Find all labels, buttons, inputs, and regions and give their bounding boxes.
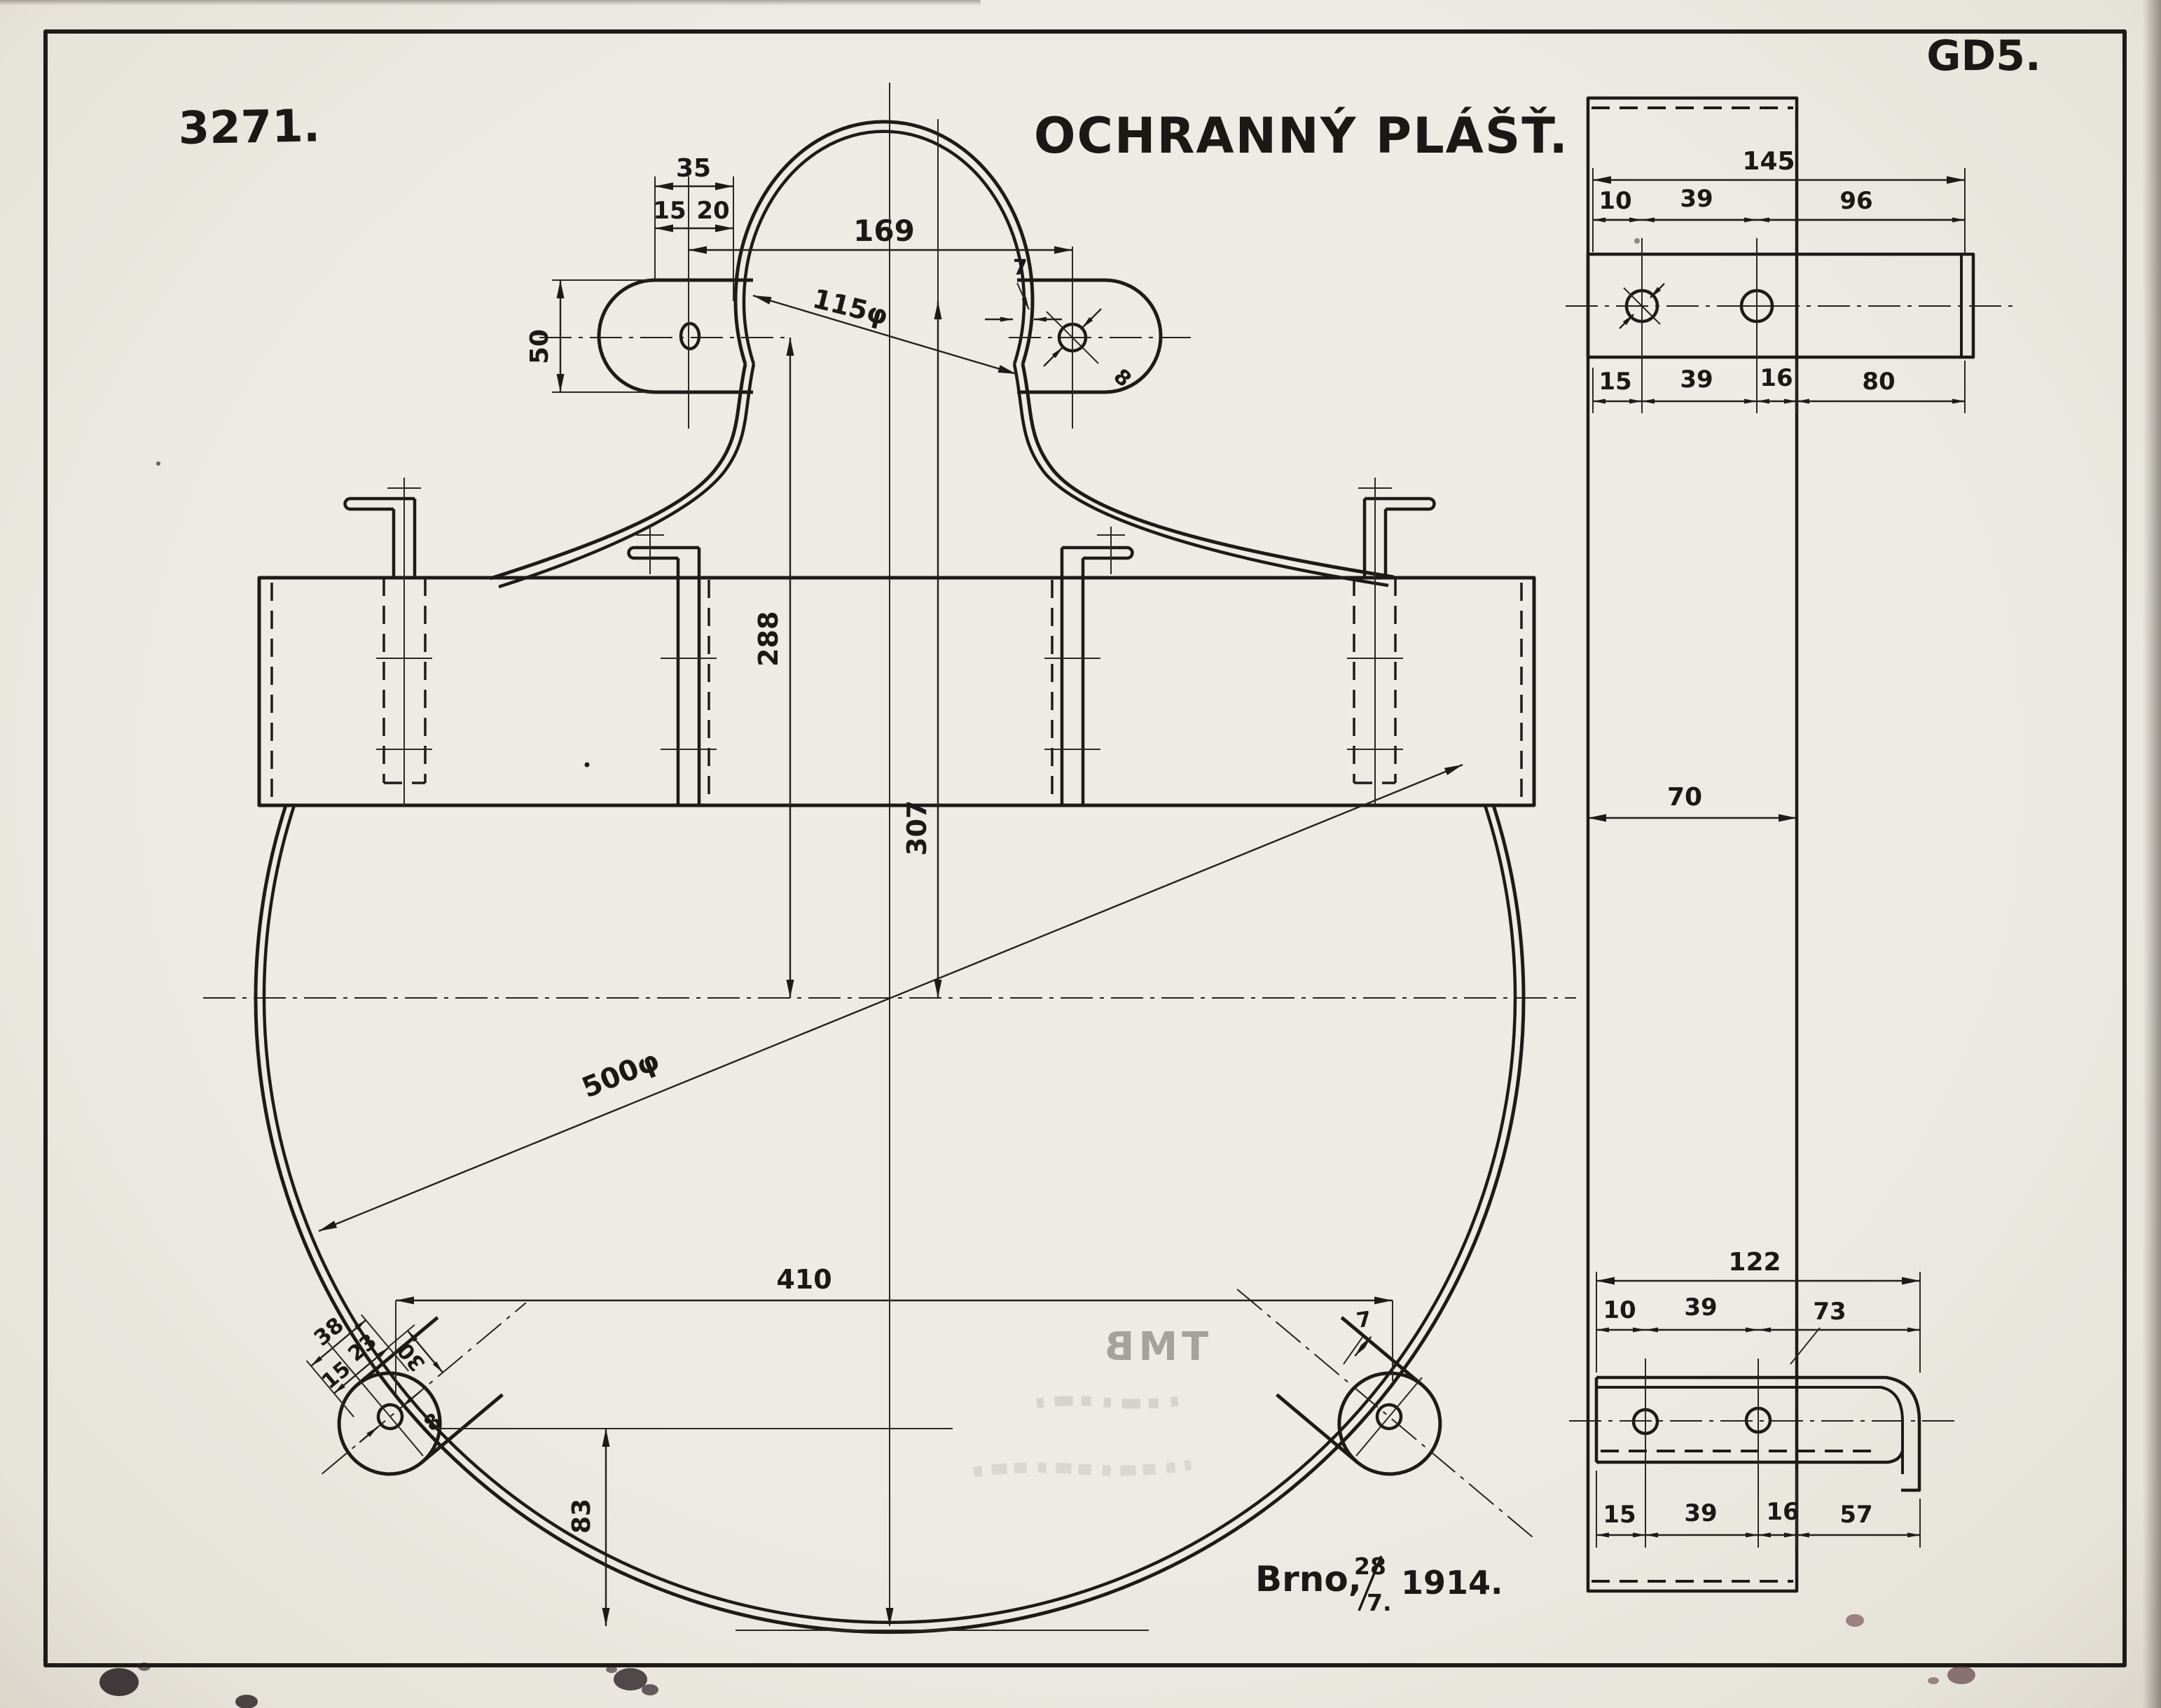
dim-label-307: 307	[902, 800, 932, 856]
bracket-1	[345, 478, 432, 805]
wall-dim-line	[1355, 1337, 1371, 1356]
date-line: Brno, 28 7. 1914.	[1255, 1553, 1503, 1616]
hole-cross-arrow	[1620, 314, 1634, 328]
leader-73	[1790, 1328, 1820, 1364]
technical-drawing-canvas: 3271. OCHRANNÝ PLÁŠŤ. GD5.	[0, 0, 2161, 1708]
sheet-code: GD5.	[1926, 32, 2041, 81]
dim-label-80: 80	[1862, 368, 1895, 396]
dim-label-35: 35	[676, 154, 711, 183]
speck	[1634, 238, 1640, 244]
dim-label-10: 10	[1599, 187, 1631, 215]
front-view: 8 38 15 23 30 7 35 15 20	[203, 83, 1576, 1632]
ink-stain	[235, 1695, 258, 1708]
dim-label-39: 39	[1684, 1293, 1717, 1321]
top-right-lug	[1009, 247, 1191, 429]
red-stain	[1928, 1677, 1939, 1684]
shell-left-inner	[499, 364, 754, 587]
issued-city: Brno,	[1255, 1559, 1362, 1599]
dim-label-83: 83	[567, 1499, 596, 1534]
ink-stain	[642, 1684, 658, 1695]
lug-tail	[1277, 1317, 1422, 1462]
scan-edge-shadow	[2143, 0, 2161, 1708]
dim-label-15: 15	[1603, 1501, 1636, 1529]
stamp-text: TMB	[1100, 1324, 1209, 1370]
dim-label-145: 145	[1742, 147, 1795, 176]
bracket-hook	[629, 548, 699, 558]
shell-right-inner	[1014, 364, 1388, 585]
hole-cross-arrow	[1650, 284, 1664, 298]
stains	[99, 238, 1975, 1708]
bracket-hook	[1062, 548, 1133, 558]
dim-label-50: 50	[525, 329, 554, 364]
dim-label-20: 20	[696, 197, 729, 225]
ink-stain	[606, 1666, 617, 1673]
ink-stain	[138, 1662, 151, 1671]
angle-bottom	[1596, 1451, 1903, 1462]
ext-lines	[552, 280, 651, 392]
dim-label-16: 16	[1766, 1498, 1799, 1526]
dim-label-39: 39	[1680, 366, 1713, 394]
dim-label-15: 15	[1599, 368, 1631, 396]
dim-label-96: 96	[1839, 187, 1872, 215]
dim-label-169: 169	[853, 214, 915, 248]
dim-label-7-top: 7	[1013, 256, 1028, 280]
top-right-lug-outline	[1017, 280, 1161, 392]
detail-top: 145 10 39 96 15 39 16 80	[1566, 147, 2017, 413]
side-view: 70 145 10 39 96 15	[1566, 98, 2017, 1591]
ink-stain	[614, 1668, 647, 1690]
dim-label-57: 57	[1839, 1501, 1872, 1529]
lug-tail	[357, 1317, 502, 1462]
top-left-lug-outline	[599, 280, 753, 392]
stamp: TMB	[974, 1324, 1208, 1472]
drawing-sheet: 3271. OCHRANNÝ PLÁŠŤ. GD5.	[0, 0, 2161, 1708]
ext-lines	[655, 176, 733, 301]
bracket-3	[1044, 527, 1133, 805]
speck	[156, 461, 160, 466]
ink-stain	[99, 1668, 139, 1696]
stamp-smudge-row	[1037, 1401, 1184, 1404]
shell-right-outer	[1023, 364, 1394, 577]
scan-edge-shadow-top	[0, 0, 981, 6]
band-outline	[259, 578, 1534, 805]
ext-lines	[396, 1300, 1393, 1395]
band	[259, 578, 1534, 805]
hole-cross-arrow	[1044, 347, 1063, 366]
dim-label-122: 122	[1728, 1248, 1781, 1277]
hole-cross-arrow	[1082, 309, 1101, 328]
dim-label-39: 39	[1680, 185, 1713, 213]
detail-bottom: 122 10 39 73 15 39 16 57	[1569, 1248, 1961, 1548]
bracket-2	[629, 527, 717, 805]
lug-axis	[1237, 1289, 1538, 1541]
red-stain	[1846, 1614, 1864, 1627]
page-title: OCHRANNÝ PLÁŠŤ.	[1034, 107, 1569, 165]
dim-label-70: 70	[1667, 783, 1702, 812]
bottom-left-lug: 8 38 15 23 30	[247, 1213, 561, 1516]
drawing-number: 3271.	[178, 100, 321, 155]
stamp-smudge-row	[974, 1465, 1191, 1472]
dim-label-15: 15	[317, 1356, 355, 1394]
issued-year: 1914.	[1401, 1564, 1503, 1602]
dim-label-7-bottom: 7	[1355, 1307, 1373, 1333]
dim-label-410: 410	[776, 1264, 831, 1295]
dim-label-30: 30	[393, 1338, 431, 1375]
dim-label-73: 73	[1813, 1298, 1846, 1326]
dim-label-16: 16	[1760, 364, 1793, 392]
red-stain	[1947, 1666, 1975, 1684]
lug-body	[1318, 1352, 1461, 1494]
issued-month: 7.	[1367, 1589, 1392, 1616]
dim-label-10: 10	[1603, 1296, 1636, 1324]
ink-dot	[585, 763, 590, 768]
dim-label-8-top: 8	[1109, 364, 1136, 392]
strip-outline	[1588, 98, 1797, 1591]
dim-label-39: 39	[1684, 1499, 1717, 1527]
dim-label-288: 288	[753, 611, 784, 667]
hole-arrow	[359, 1427, 378, 1443]
top-left-lug-hole	[681, 324, 699, 349]
bracket-4	[1347, 478, 1435, 805]
shell-left-outer	[490, 364, 745, 578]
dim-label-15: 15	[653, 197, 686, 225]
